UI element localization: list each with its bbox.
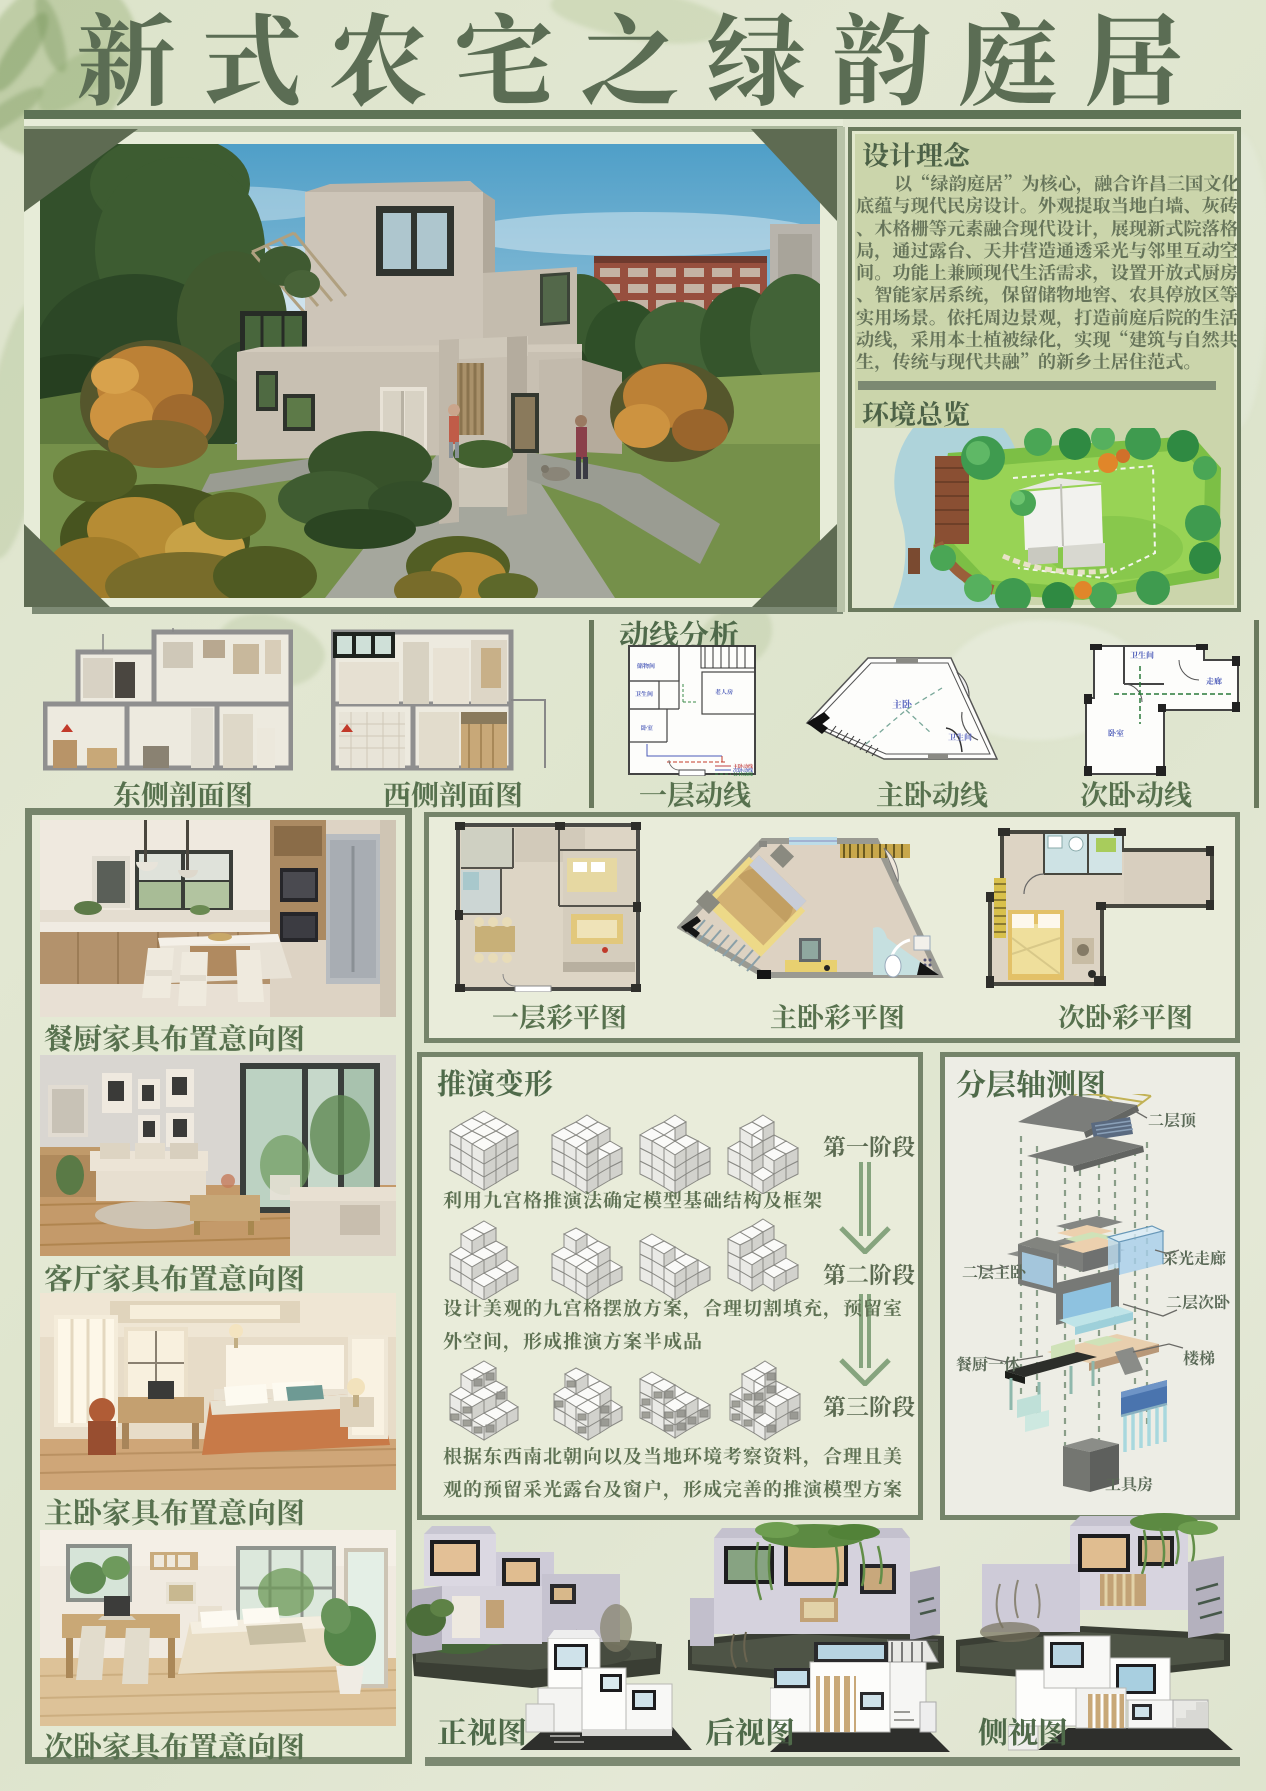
svg-text:卧室: 卧室: [641, 723, 653, 732]
svg-text:储物间: 储物间: [637, 661, 655, 670]
svg-text:卫生间: 卫生间: [635, 689, 653, 698]
svg-text:卧室: 卧室: [1108, 728, 1124, 739]
svg-text:主卧: 主卧: [892, 696, 913, 711]
svg-text:卫生间: 卫生间: [948, 732, 972, 743]
svg-text:走廊: 走廊: [1206, 676, 1222, 687]
svg-text:老人房: 老人房: [715, 687, 733, 696]
svg-text:卫生间: 卫生间: [1130, 650, 1154, 661]
